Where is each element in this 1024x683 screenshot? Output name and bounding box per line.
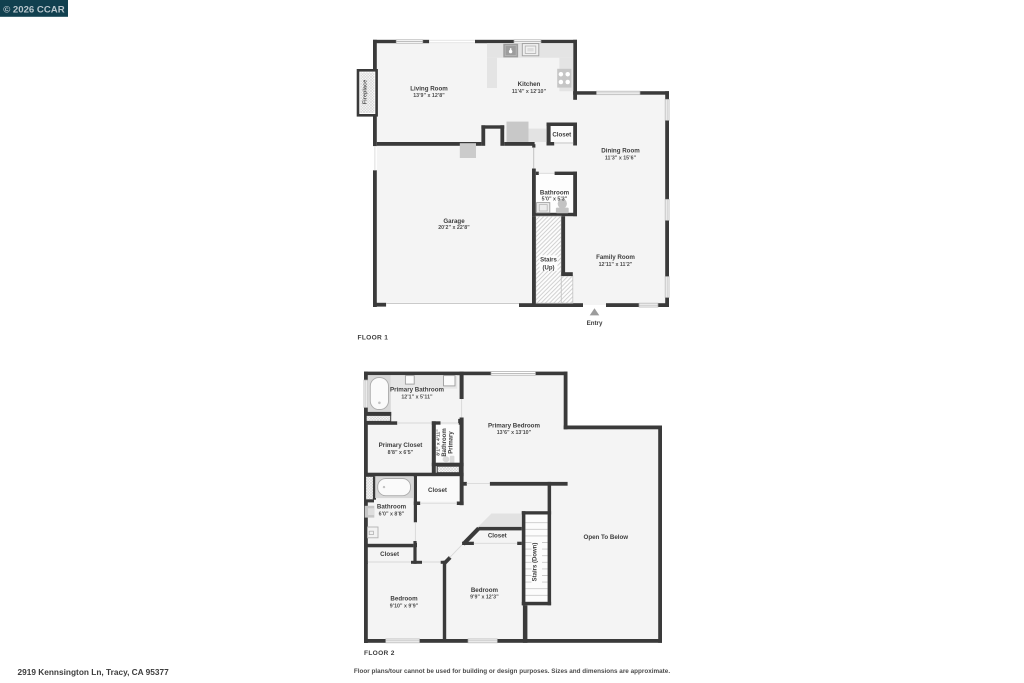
svg-text:Dining Room: Dining Room <box>601 148 640 155</box>
svg-text:Primary Bathroom: Primary Bathroom <box>390 387 444 394</box>
svg-text:8’1” x 4’11”: 8’1” x 4’11” <box>436 429 442 456</box>
svg-text:Living Room: Living Room <box>410 86 448 93</box>
svg-text:Bedroom: Bedroom <box>390 596 418 603</box>
svg-text:Primary: Primary <box>448 431 454 454</box>
svg-text:Closet: Closet <box>380 551 399 558</box>
svg-text:20’2” x 22’8”: 20’2” x 22’8” <box>438 225 470 231</box>
svg-text:Primary Closet: Primary Closet <box>379 442 423 449</box>
svg-text:Entry: Entry <box>587 320 603 327</box>
svg-text:Closet: Closet <box>428 487 447 494</box>
svg-text:Bedroom: Bedroom <box>471 587 499 594</box>
svg-text:12’1” x 5’11”: 12’1” x 5’11” <box>401 395 433 401</box>
svg-text:Stairs (Down): Stairs (Down) <box>533 543 539 582</box>
svg-text:Family Room: Family Room <box>596 254 635 261</box>
svg-text:11’4” x 12’10”: 11’4” x 12’10” <box>512 89 547 95</box>
svg-text:FLOOR 1: FLOOR 1 <box>358 334 389 341</box>
svg-text:9’9” x 12’3”: 9’9” x 12’3” <box>470 595 499 601</box>
svg-text:2919 Kennsington Ln, Tracy, CA: 2919 Kennsington Ln, Tracy, CA 95377 <box>18 667 170 677</box>
svg-text:6’0” x 8’8”: 6’0” x 8’8” <box>379 511 405 517</box>
svg-text:5’0” x 5’3”: 5’0” x 5’3” <box>542 196 568 202</box>
svg-text:Garage: Garage <box>443 218 465 225</box>
svg-text:Bathroom: Bathroom <box>377 503 407 510</box>
svg-text:11’3” x 15’6”: 11’3” x 15’6” <box>605 155 637 161</box>
svg-text:(Up): (Up) <box>543 265 555 271</box>
svg-text:Open To Below: Open To Below <box>584 534 629 541</box>
svg-text:Closet: Closet <box>488 533 507 540</box>
svg-text:Primary Bedroom: Primary Bedroom <box>488 422 540 429</box>
svg-text:13’9” x 12’8”: 13’9” x 12’8” <box>413 93 445 99</box>
svg-text:Floor plans/tour cannot be use: Floor plans/tour cannot be used for buil… <box>354 668 670 675</box>
svg-text:12’11” x 11’2”: 12’11” x 11’2” <box>599 262 633 268</box>
svg-text:Fireplace: Fireplace <box>363 80 369 105</box>
svg-text:8’8” x 6’5”: 8’8” x 6’5” <box>388 450 414 456</box>
svg-text:Bathroom: Bathroom <box>540 189 570 196</box>
svg-text:FLOOR 2: FLOOR 2 <box>364 650 395 657</box>
svg-text:© 2026 CCAR: © 2026 CCAR <box>3 4 65 15</box>
svg-text:Kitchen: Kitchen <box>518 81 541 88</box>
svg-text:13’6” x 13’10”: 13’6” x 13’10” <box>497 430 532 436</box>
svg-text:Closet: Closet <box>552 132 571 139</box>
svg-text:9’10” x 9’9”: 9’10” x 9’9” <box>390 604 419 610</box>
svg-text:Bathroom: Bathroom <box>442 428 448 456</box>
svg-text:Stairs: Stairs <box>540 257 557 263</box>
